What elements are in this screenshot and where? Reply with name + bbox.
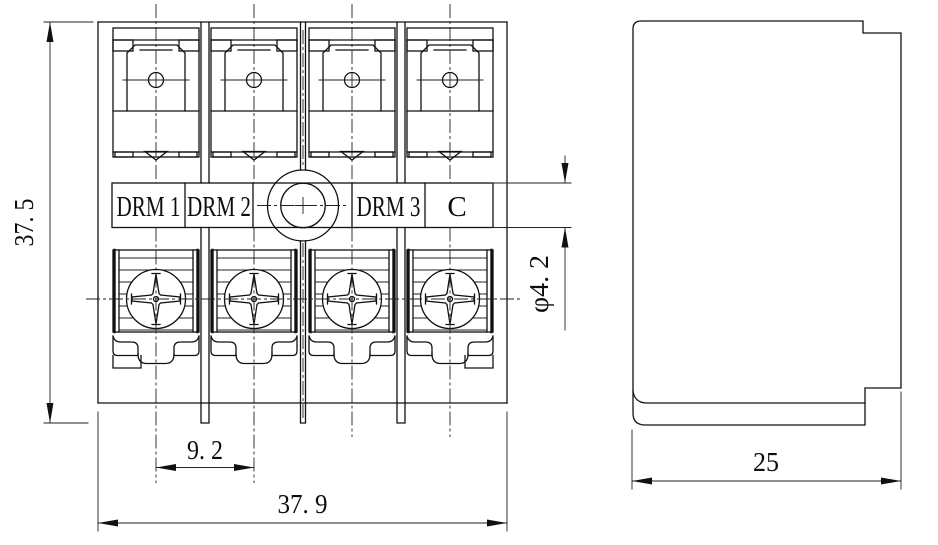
dim-side-depth: 25 — [632, 392, 901, 489]
technical-drawing-canvas: DRM 1 DRM 2 DRM 3 C — [0, 0, 938, 545]
strip-label-drm2: DRM 2 — [187, 191, 251, 223]
dim-overall-width: 37. 9 — [98, 412, 507, 531]
side-base-line — [633, 391, 865, 403]
dim-text-terminal-pitch: 9. 2 — [187, 435, 223, 465]
foot-step-left — [113, 356, 141, 369]
wire-entry-3 — [309, 28, 395, 160]
terminal-block-drawing: DRM 1 DRM 2 DRM 3 C — [0, 0, 938, 545]
dim-text-overall-height: 37. 5 — [9, 199, 39, 247]
dim-hole-diameter: φ4. 2 — [491, 156, 571, 330]
dim-text-overall-width: 37. 9 — [278, 489, 328, 519]
dim-text-side-depth: 25 — [753, 447, 779, 477]
mounting-hole — [257, 170, 349, 241]
wire-entry-2 — [211, 28, 297, 160]
wire-entry-4 — [407, 28, 493, 160]
side-view — [633, 21, 901, 425]
front-view: DRM 1 DRM 2 DRM 3 C — [86, 4, 521, 483]
dim-overall-height: 37. 5 — [9, 22, 93, 423]
strip-label-drm3: DRM 3 — [357, 191, 421, 223]
side-body-outline — [633, 21, 901, 425]
dim-text-hole-diameter: φ4. 2 — [524, 255, 554, 313]
strip-label-c: C — [447, 191, 466, 223]
strip-label-drm1: DRM 1 — [117, 191, 181, 223]
wire-entry-1 — [113, 28, 199, 160]
foot-step-right — [465, 356, 493, 369]
dim-terminal-pitch: 9. 2 — [156, 435, 254, 468]
